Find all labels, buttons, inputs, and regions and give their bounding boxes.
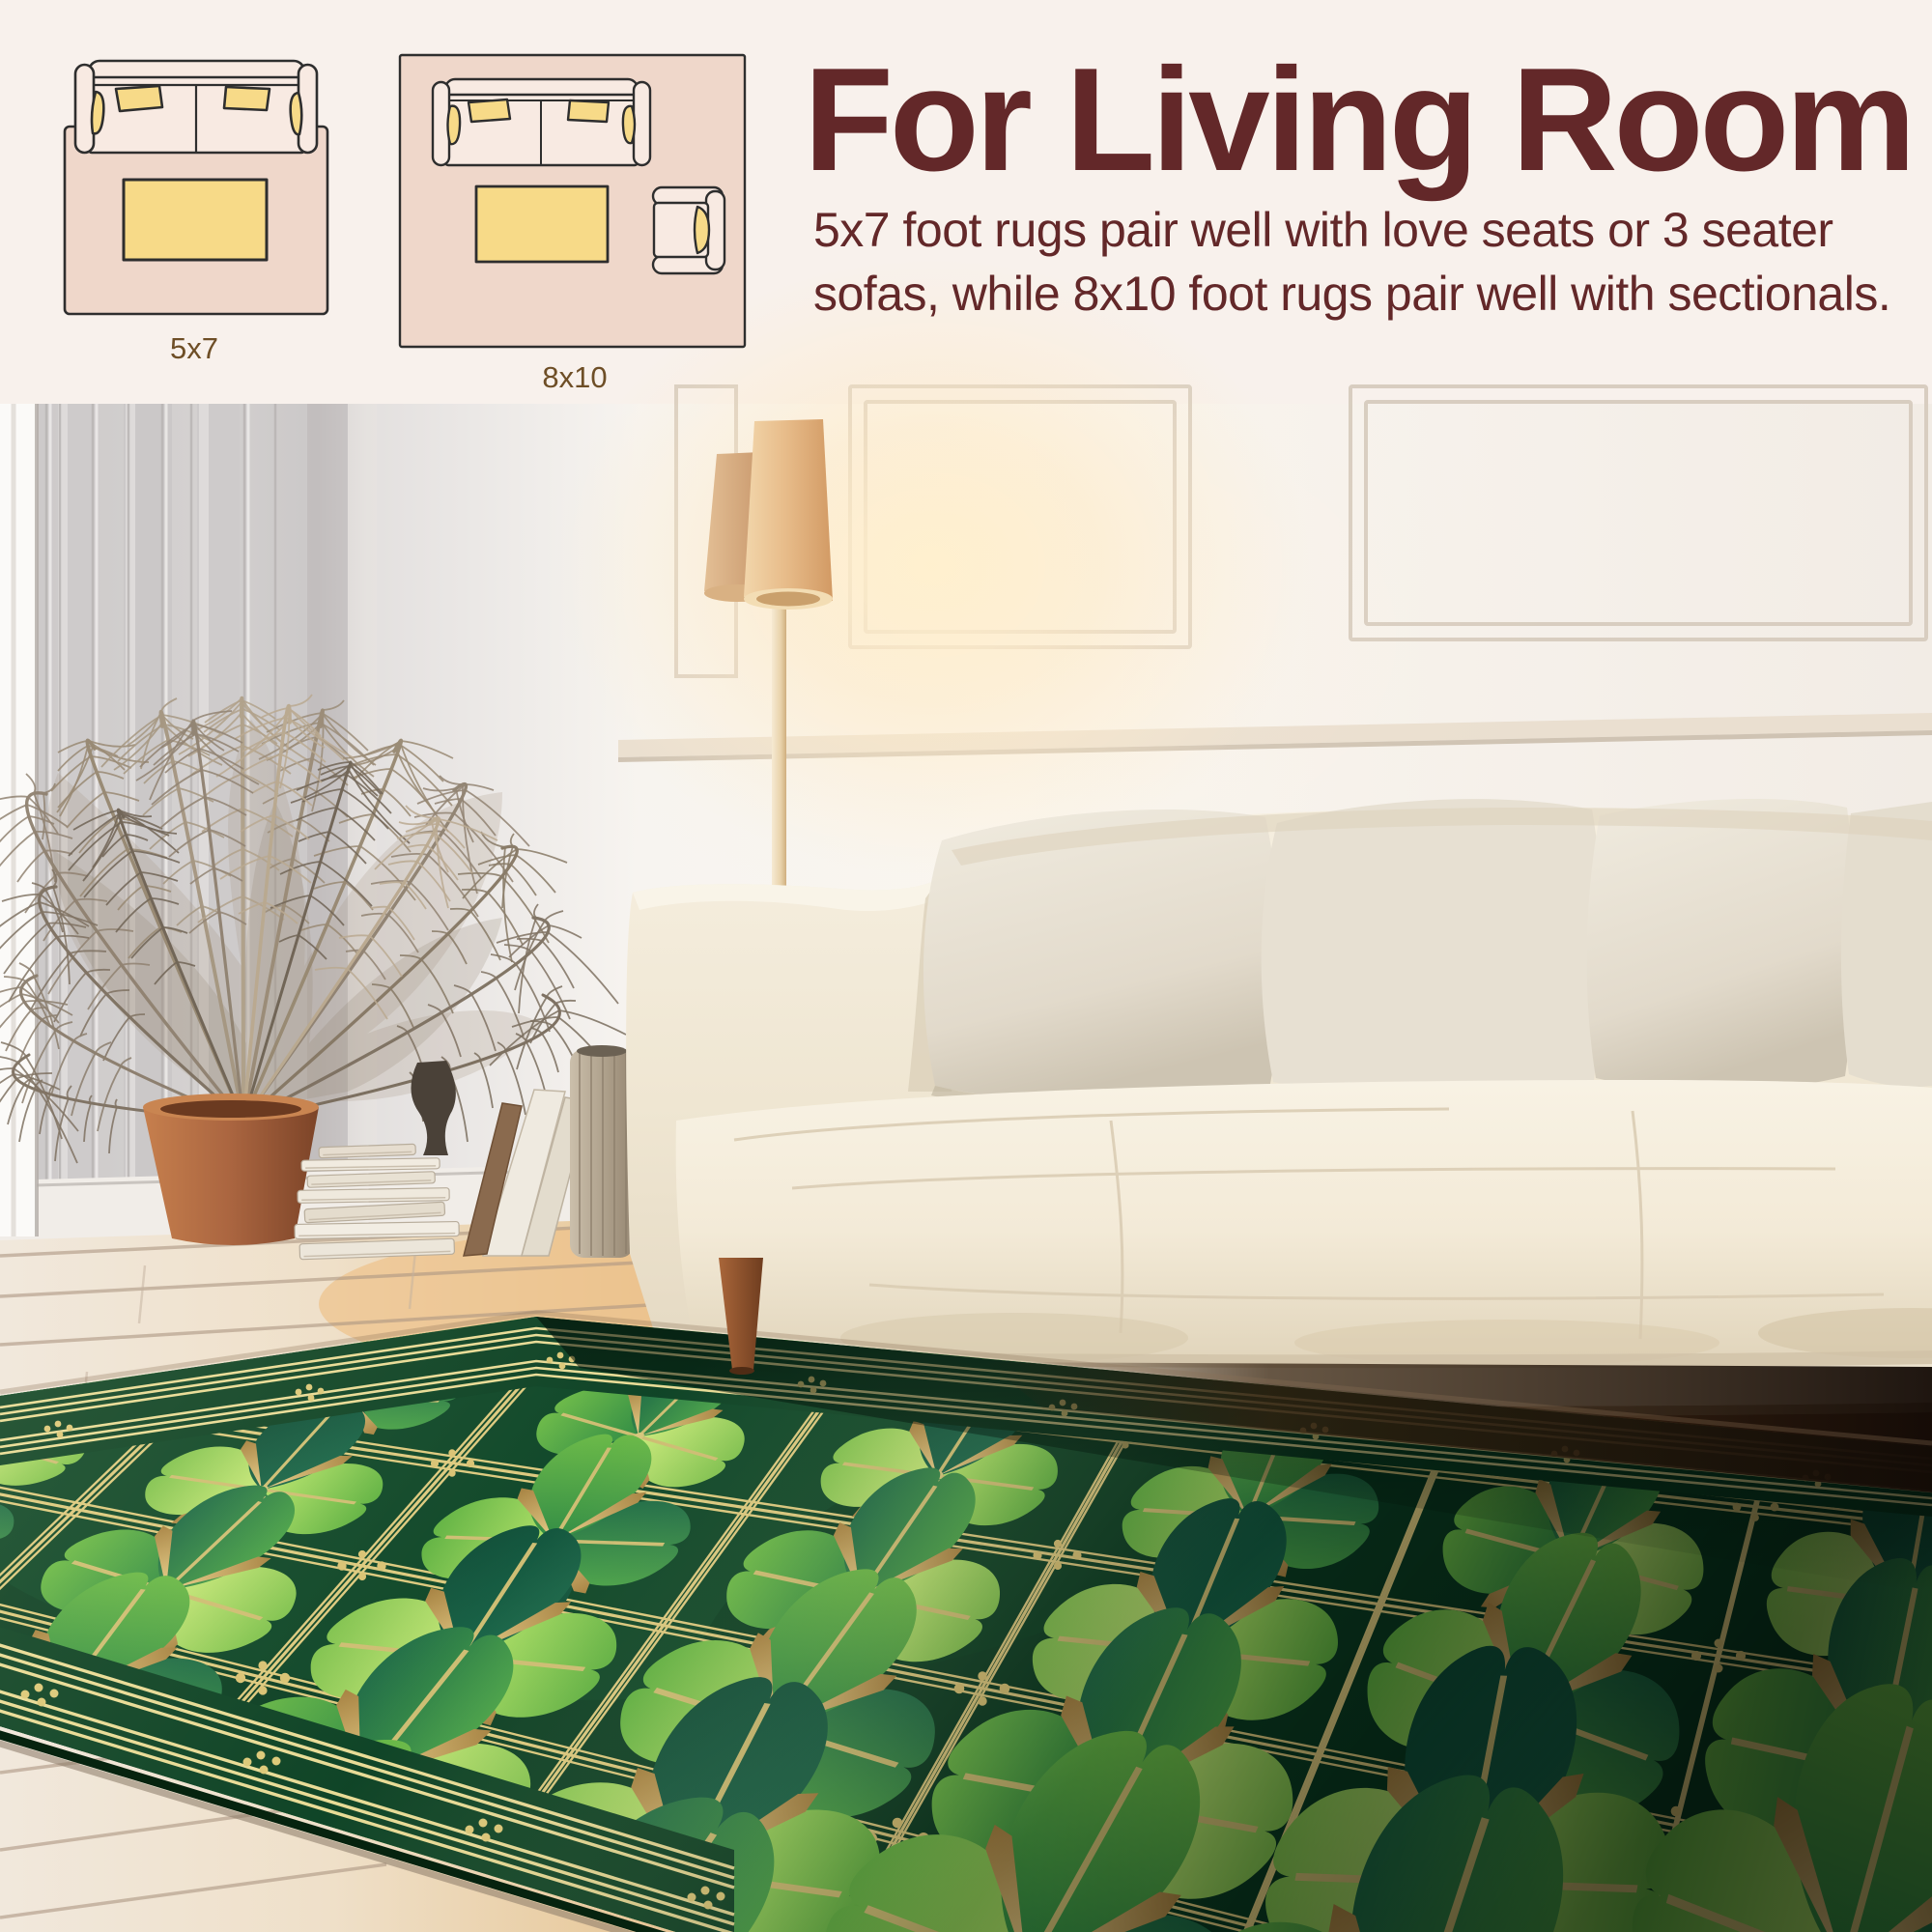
svg-text:5x7: 5x7 bbox=[170, 331, 218, 365]
svg-text:8x10: 8x10 bbox=[542, 360, 607, 394]
